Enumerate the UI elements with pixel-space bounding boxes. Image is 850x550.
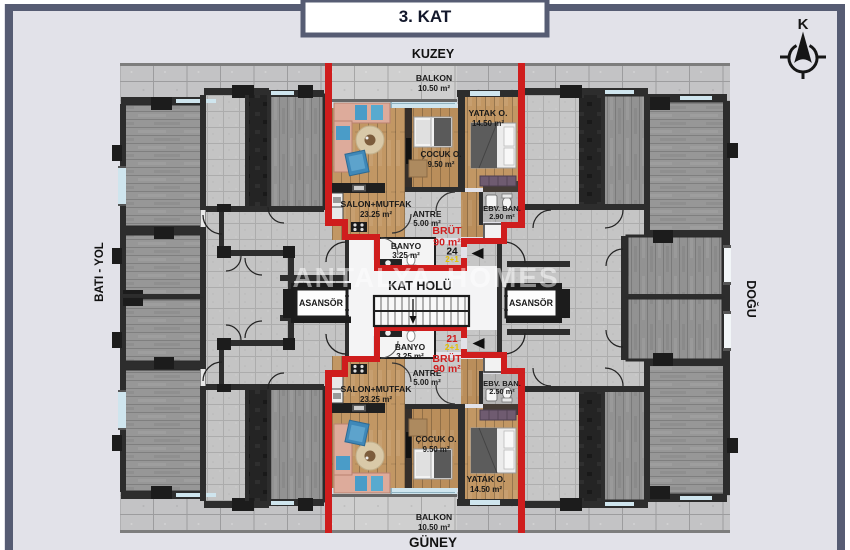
- svg-text:3.25 m²: 3.25 m²: [392, 251, 420, 260]
- svg-text:BRÜT: BRÜT: [432, 224, 462, 237]
- svg-text:BATI - YOL: BATI - YOL: [94, 242, 106, 302]
- svg-text:YATAK O.: YATAK O.: [469, 108, 508, 118]
- svg-text:BANYO: BANYO: [391, 241, 422, 251]
- svg-text:K: K: [798, 16, 809, 33]
- svg-text:5.00 m²: 5.00 m²: [413, 378, 441, 387]
- svg-text:SALON+MUTFAK: SALON+MUTFAK: [341, 384, 413, 394]
- svg-text:ÇOCUK O.: ÇOCUK O.: [416, 435, 457, 444]
- svg-text:9.50 m²: 9.50 m²: [428, 160, 455, 169]
- svg-text:14.50 m²: 14.50 m²: [470, 485, 502, 494]
- svg-text:10.50 m²: 10.50 m²: [418, 523, 450, 532]
- svg-text:BANYO: BANYO: [395, 342, 426, 352]
- svg-text:9.50 m²: 9.50 m²: [423, 445, 450, 454]
- svg-text:ÇOCUK O.: ÇOCUK O.: [421, 150, 462, 159]
- svg-text:23.25 m²: 23.25 m²: [360, 210, 392, 219]
- svg-text:DOĞU: DOĞU: [744, 280, 759, 318]
- svg-text:KUZEY: KUZEY: [412, 47, 455, 61]
- svg-text:ASANSÖR: ASANSÖR: [509, 298, 554, 308]
- svg-text:90 m²: 90 m²: [433, 363, 461, 375]
- svg-text:BALKON: BALKON: [416, 73, 452, 83]
- svg-text:14.50 m²: 14.50 m²: [472, 119, 504, 128]
- svg-text:2+1: 2+1: [445, 342, 460, 352]
- svg-text:YATAK O.: YATAK O.: [467, 474, 506, 484]
- svg-text:10.50 m²: 10.50 m²: [418, 84, 450, 93]
- svg-text:2.90 m²: 2.90 m²: [489, 212, 515, 221]
- svg-text:HOMES: HOMES: [447, 262, 560, 293]
- svg-text:ASANSÖR: ASANSÖR: [299, 298, 344, 308]
- svg-text:23.25 m²: 23.25 m²: [360, 395, 392, 404]
- svg-text:2.50 m²: 2.50 m²: [489, 387, 515, 396]
- svg-text:GÜNEY: GÜNEY: [409, 535, 457, 550]
- svg-text:ANTALYA: ANTALYA: [292, 262, 433, 293]
- svg-text:BALKON: BALKON: [416, 512, 452, 522]
- svg-text:3.25 m²: 3.25 m²: [396, 352, 424, 361]
- svg-text:3. KAT: 3. KAT: [399, 7, 452, 26]
- svg-text:SALON+MUTFAK: SALON+MUTFAK: [341, 199, 413, 209]
- svg-text:ANTRE: ANTRE: [413, 209, 442, 219]
